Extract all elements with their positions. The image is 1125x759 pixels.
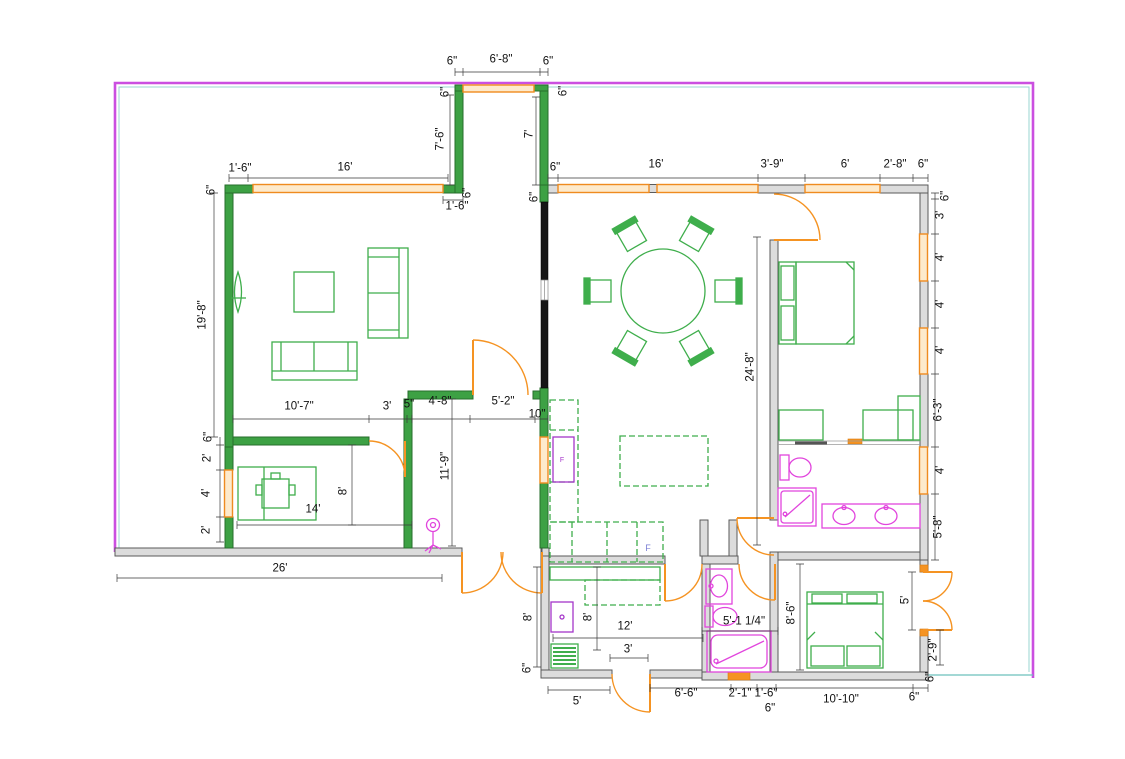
sofa-vertical <box>368 248 408 338</box>
patio-wall <box>115 548 462 556</box>
sliding-door-stub <box>848 439 862 444</box>
vestibule-right-wall <box>540 90 548 185</box>
bathroom-fixtures <box>425 455 920 672</box>
wall-segment <box>920 494 928 560</box>
office-chair <box>262 479 289 508</box>
office-desk <box>238 467 316 520</box>
double-vanity <box>822 504 920 528</box>
laundry-door <box>612 674 650 712</box>
closet-right <box>863 410 913 440</box>
wall-segment <box>920 630 928 678</box>
window <box>540 437 548 483</box>
living-south-wall <box>408 391 473 399</box>
laundry-shelf <box>550 567 660 580</box>
counter-label: F <box>645 543 651 553</box>
dimension-lines <box>117 68 944 694</box>
bathtub <box>707 631 771 672</box>
wall-segment <box>778 552 920 560</box>
window <box>225 470 233 517</box>
wall-segment <box>758 185 805 193</box>
door-arc <box>473 340 528 395</box>
door-arc <box>665 564 702 601</box>
dining-table <box>621 249 705 333</box>
wall-segment <box>548 185 558 193</box>
french-doors <box>923 572 952 630</box>
dim-lines-vertical <box>214 95 940 670</box>
wall-segment <box>920 281 928 328</box>
living-room-door <box>473 340 528 395</box>
wall-segment <box>225 517 233 548</box>
door-arc <box>737 518 774 555</box>
dim-ticks-horizontal <box>210 95 944 670</box>
wall-segment-black <box>541 300 548 388</box>
bed-master <box>779 262 854 344</box>
sofa-horizontal <box>272 342 357 380</box>
wall-stub <box>729 520 737 556</box>
window <box>920 447 928 494</box>
floor-plan-page: F F <box>0 0 1125 759</box>
wall-segment <box>920 193 928 234</box>
wall-segment-black <box>541 202 548 280</box>
wall-segment <box>540 483 548 548</box>
bedroom1-door <box>774 194 820 240</box>
page-boundary <box>115 83 1033 678</box>
door-arc <box>462 552 503 593</box>
wall-segment <box>650 670 702 678</box>
kitchen-island <box>620 436 708 486</box>
dining-chair <box>678 330 714 366</box>
gray-walls <box>115 185 928 681</box>
office-door <box>369 441 405 477</box>
dim-ticks-vertical <box>117 68 928 694</box>
dim-lines-horizontal <box>117 72 928 690</box>
windows <box>225 85 928 517</box>
closet-left <box>779 410 823 440</box>
appliances <box>551 437 574 632</box>
vestibule-left-wall <box>455 90 463 193</box>
window <box>805 185 880 193</box>
french-door-stub <box>920 565 928 572</box>
boundary-cyan-line <box>119 87 1029 672</box>
wall-partition-dining-bedroom <box>770 240 778 520</box>
dining-chair <box>612 330 648 366</box>
window <box>657 185 758 193</box>
dresser <box>898 396 920 440</box>
boundary-magenta-line <box>115 83 1033 678</box>
fridge-label: F <box>560 457 564 464</box>
wall-segment <box>541 670 612 678</box>
door-arc <box>369 441 405 477</box>
hall-door <box>665 564 702 601</box>
wall-left <box>225 193 233 447</box>
door-arc <box>612 674 650 712</box>
window-mullion <box>649 185 657 193</box>
wall-segment <box>225 447 233 470</box>
washer-knob <box>560 615 564 619</box>
bed-guest <box>807 592 883 668</box>
bedroom2-door <box>737 518 774 555</box>
doors <box>369 194 952 712</box>
door-arc <box>923 601 952 630</box>
dining-chair <box>584 278 611 304</box>
thin-window <box>541 280 548 300</box>
laundry-counter <box>585 580 660 605</box>
dining-chair <box>678 216 714 252</box>
kitchen-counters <box>550 400 708 605</box>
door-arc <box>774 194 820 240</box>
slide-panel <box>795 442 827 445</box>
wall-stub <box>534 85 548 91</box>
window <box>920 328 928 374</box>
door-arc <box>501 552 542 593</box>
wall-segment <box>540 388 548 437</box>
washer <box>551 602 573 632</box>
drying-rack <box>551 644 578 668</box>
wall-stub <box>700 520 708 556</box>
dining-chair <box>612 216 648 252</box>
window <box>558 185 649 193</box>
window <box>920 234 928 281</box>
entry-window <box>463 85 534 92</box>
window-small <box>728 672 750 680</box>
dining-chairs <box>584 216 742 366</box>
shower-master <box>778 488 816 526</box>
wall-segment <box>540 185 548 202</box>
wall-segment <box>880 185 928 193</box>
wall-segment <box>225 185 253 193</box>
floor-plan-drawing: F F <box>0 0 1125 759</box>
door-arc <box>923 572 952 601</box>
window <box>253 185 443 193</box>
wall-segment <box>542 548 549 556</box>
entry-double-door <box>462 552 542 593</box>
toilet-master <box>780 455 811 480</box>
wall-segment <box>702 556 738 564</box>
wall-segment <box>920 374 928 447</box>
coffee-table <box>294 272 334 312</box>
dining-chair <box>715 278 742 304</box>
office-north-wall <box>233 437 369 445</box>
